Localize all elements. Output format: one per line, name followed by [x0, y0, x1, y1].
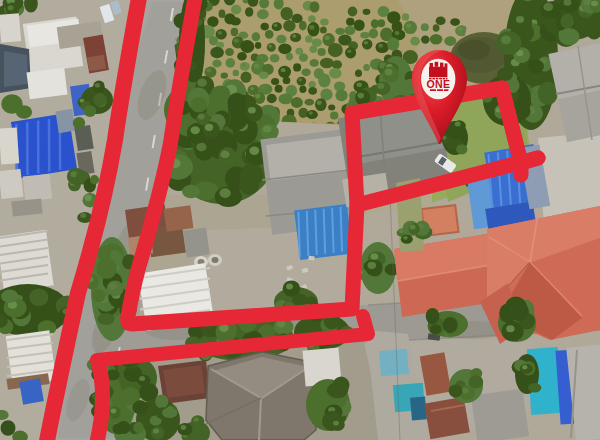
svg-text:ONE: ONE	[426, 78, 450, 90]
